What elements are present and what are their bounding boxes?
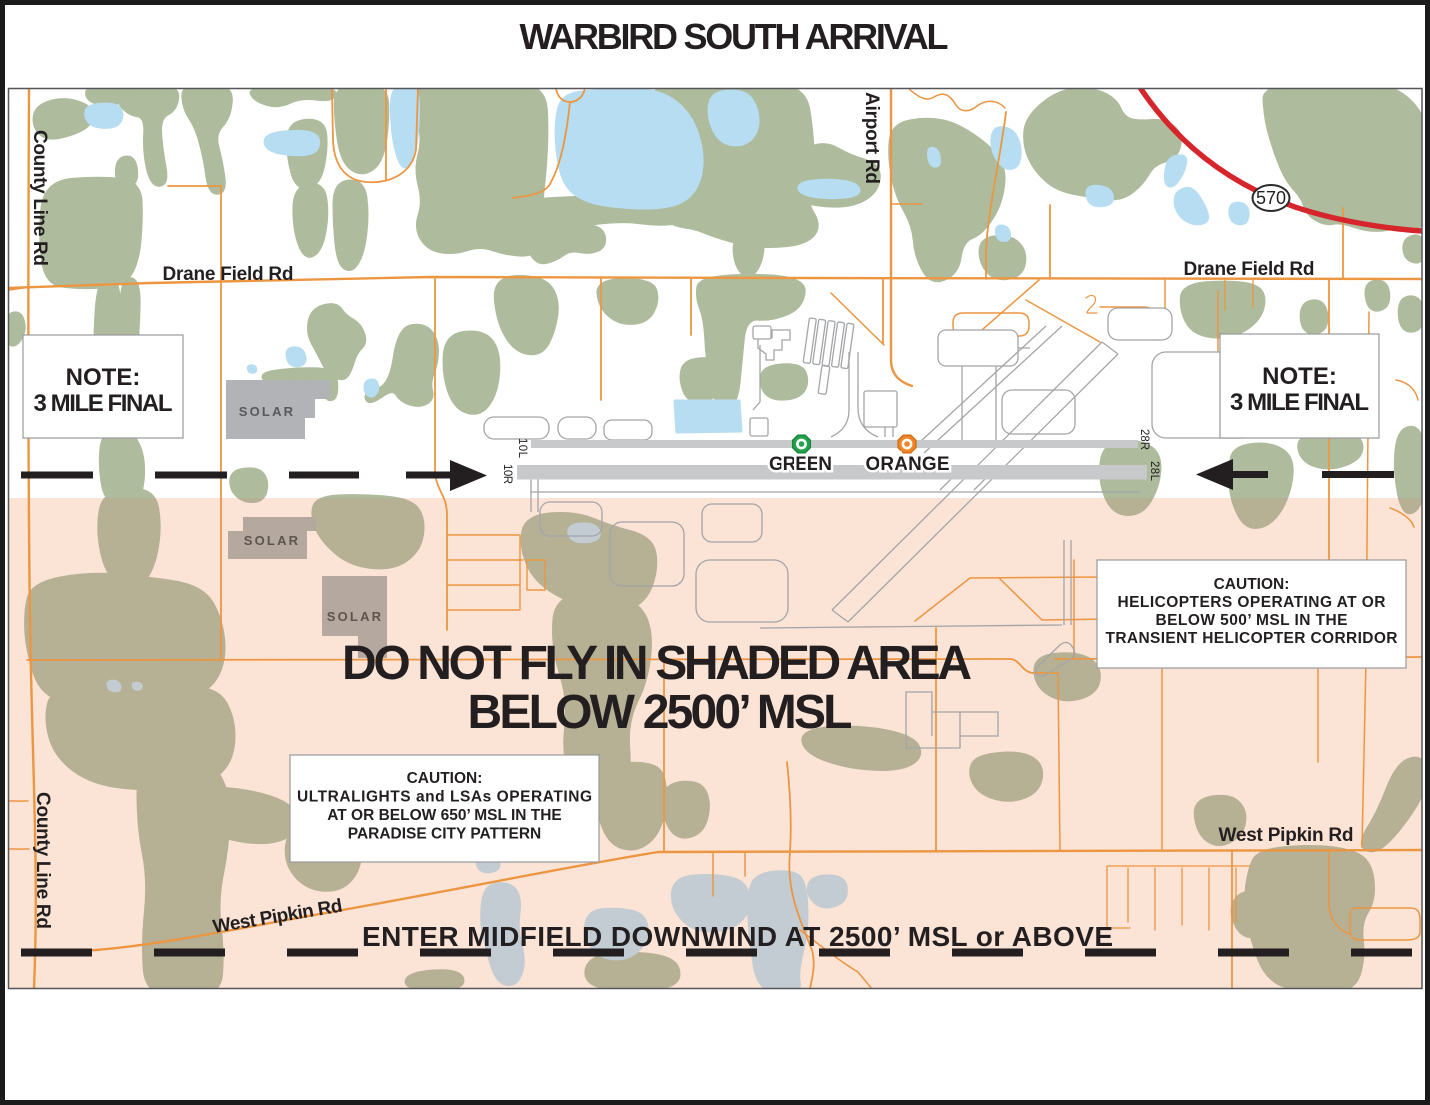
svg-text:DO NOT FLY IN SHADED AREA: DO NOT FLY IN SHADED AREA — [342, 637, 972, 690]
svg-text:County Line Rd: County Line Rd — [32, 792, 53, 929]
svg-text:ORANGE: ORANGE — [866, 454, 950, 475]
svg-text:10R: 10R — [501, 464, 513, 484]
svg-text:CAUTION:: CAUTION: — [1214, 576, 1290, 593]
svg-text:SOLAR: SOLAR — [239, 404, 296, 419]
svg-text:SOLAR: SOLAR — [244, 533, 301, 548]
svg-text:HELICOPTERS OPERATING AT OR: HELICOPTERS OPERATING AT OR — [1118, 594, 1386, 611]
svg-text:3 MILE FINAL: 3 MILE FINAL — [1230, 389, 1369, 416]
svg-text:BELOW 500’ MSL IN THE: BELOW 500’ MSL IN THE — [1156, 612, 1348, 629]
svg-text:TRANSIENT HELICOPTER CORRIDOR: TRANSIENT HELICOPTER CORRIDOR — [1106, 630, 1398, 647]
svg-text:GREEN: GREEN — [769, 454, 832, 475]
svg-text:3 MILE FINAL: 3 MILE FINAL — [34, 390, 173, 417]
svg-text:ULTRALIGHTS and LSAs OPERATING: ULTRALIGHTS and LSAs OPERATING — [297, 789, 592, 806]
svg-text:28R: 28R — [1138, 429, 1150, 450]
svg-text:West Pipkin Rd: West Pipkin Rd — [1219, 825, 1354, 846]
svg-text:NOTE:: NOTE: — [66, 364, 141, 391]
svg-text:ENTER MIDFIELD DOWNWIND AT 250: ENTER MIDFIELD DOWNWIND AT 2500’ MSL or … — [362, 921, 1113, 952]
svg-text:AT OR BELOW 650’ MSL IN THE: AT OR BELOW 650’ MSL IN THE — [327, 807, 562, 824]
svg-text:Drane Field Rd: Drane Field Rd — [163, 264, 294, 285]
svg-text:CAUTION:: CAUTION: — [407, 770, 483, 787]
svg-text:570: 570 — [1256, 188, 1286, 208]
svg-text:Drane Field Rd: Drane Field Rd — [1184, 259, 1315, 280]
svg-text:County Line Rd: County Line Rd — [29, 130, 50, 266]
svg-text:PARADISE CITY PATTERN: PARADISE CITY PATTERN — [348, 826, 541, 843]
svg-text:10L: 10L — [516, 438, 528, 459]
svg-text:NOTE:: NOTE: — [1262, 363, 1337, 390]
svg-text:BELOW 2500’ MSL: BELOW 2500’ MSL — [468, 686, 853, 739]
svg-text:28L: 28L — [1148, 461, 1160, 482]
svg-text:WARBIRD SOUTH ARRIVAL: WARBIRD SOUTH ARRIVAL — [520, 16, 949, 57]
svg-text:Airport Rd: Airport Rd — [861, 92, 882, 184]
svg-text:SOLAR: SOLAR — [327, 609, 384, 624]
